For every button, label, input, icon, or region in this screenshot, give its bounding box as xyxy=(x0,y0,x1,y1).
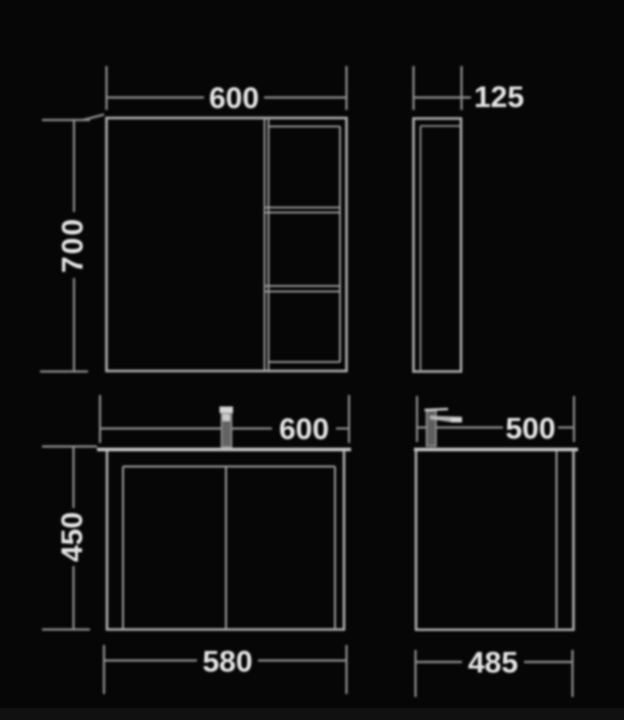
svg-text:500: 500 xyxy=(505,413,555,446)
svg-text:450: 450 xyxy=(56,512,89,562)
svg-text:485: 485 xyxy=(468,647,518,680)
svg-text:700: 700 xyxy=(57,217,90,273)
svg-text:600: 600 xyxy=(279,413,329,446)
svg-text:125: 125 xyxy=(474,81,524,114)
svg-text:600: 600 xyxy=(209,82,259,115)
svg-text:580: 580 xyxy=(202,646,252,679)
